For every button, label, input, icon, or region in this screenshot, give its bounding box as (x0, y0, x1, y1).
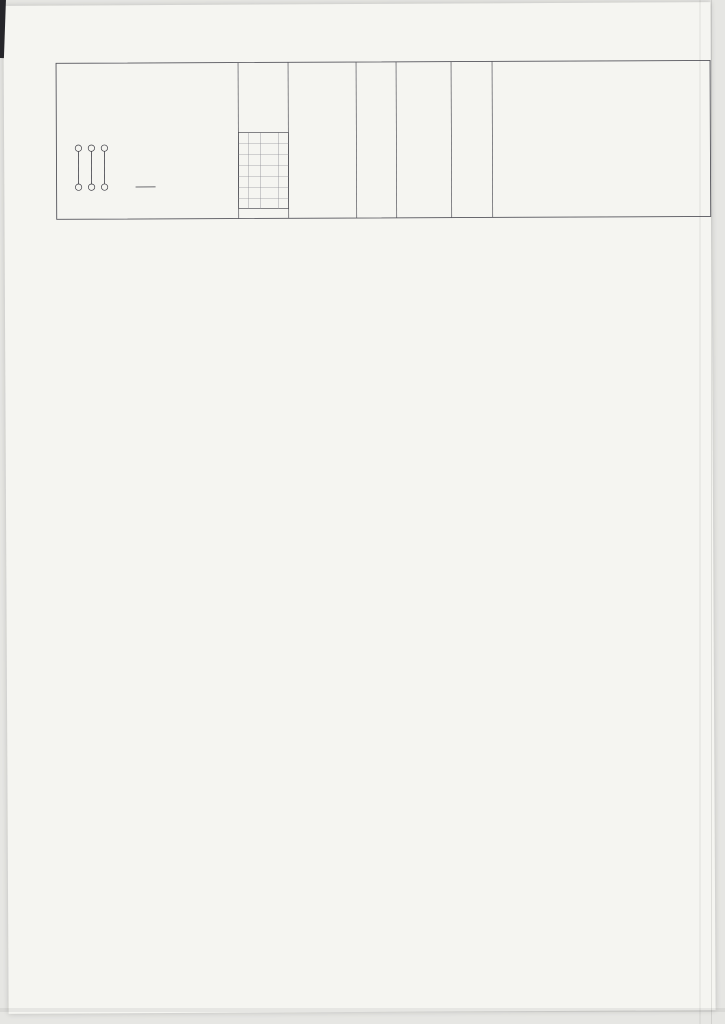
paper-bottom-shadow (0, 1008, 725, 1012)
scanned-drawing-page (0, 0, 725, 1024)
drawing-linework (0, 0, 725, 1024)
drawing-content (0, 0, 725, 1024)
paper-fold-line (699, 0, 701, 1024)
paper-right-edge (711, 0, 712, 1024)
